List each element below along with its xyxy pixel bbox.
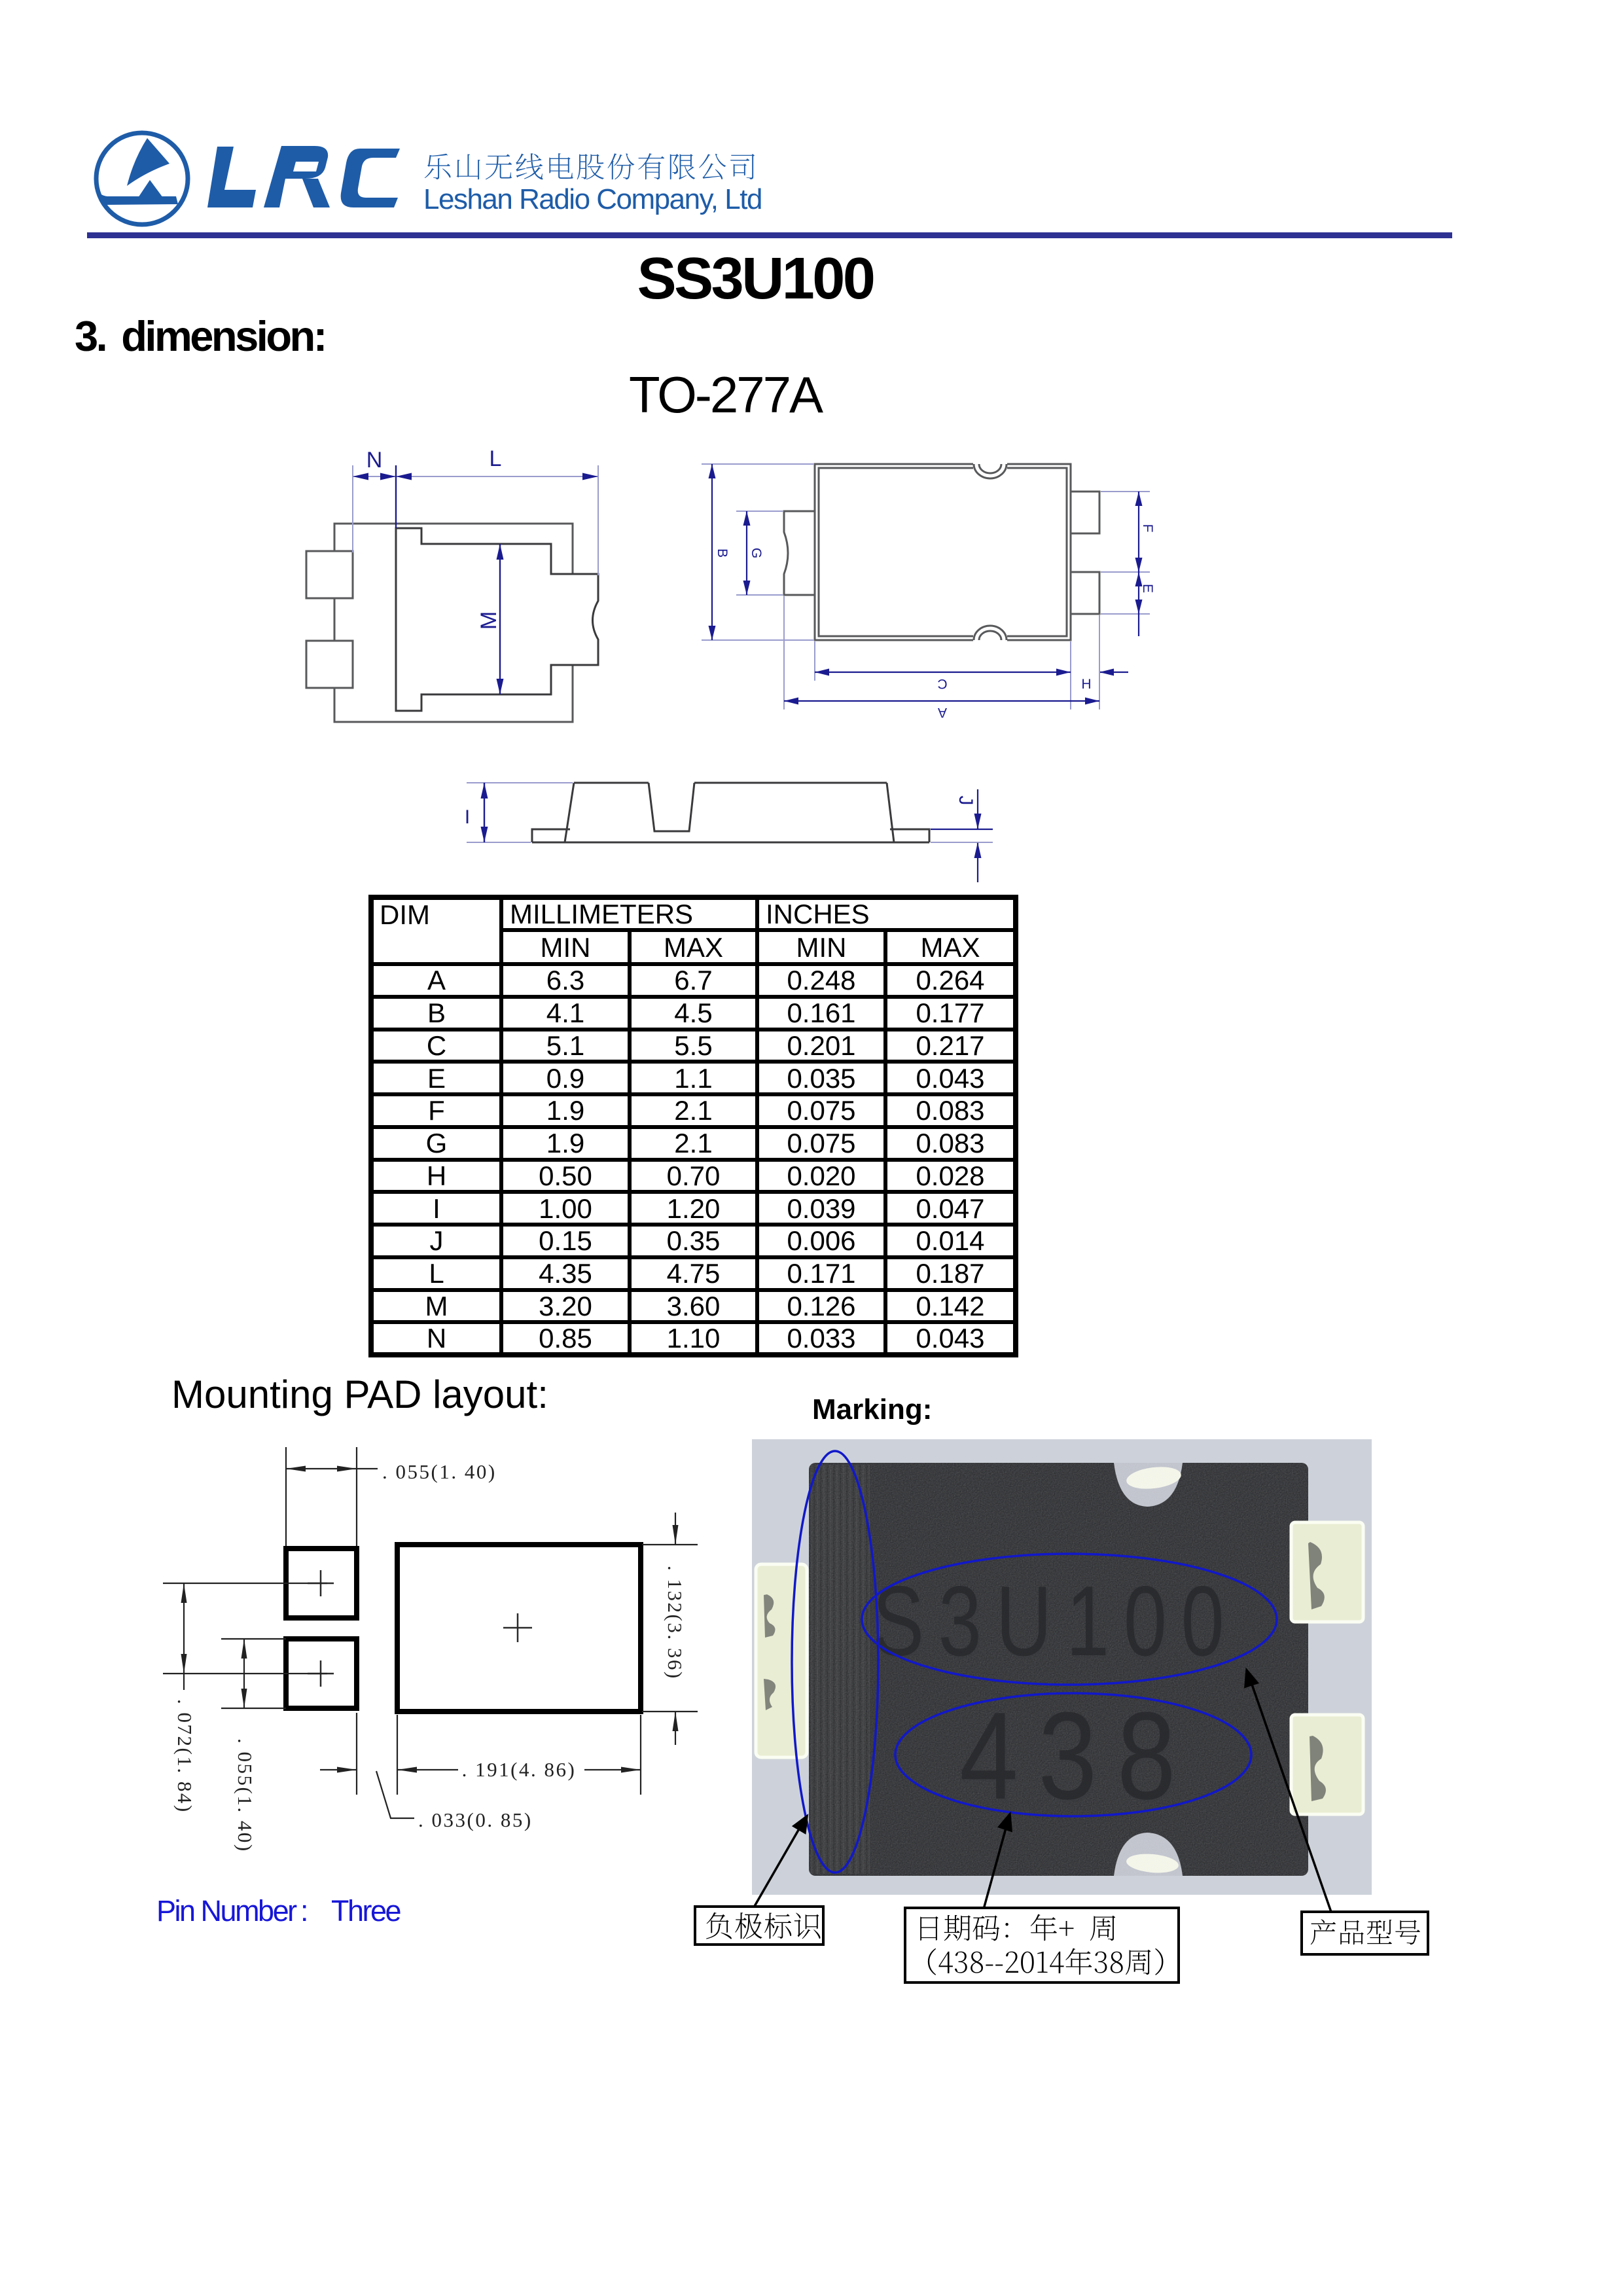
svg-text:E: E [1140,584,1155,593]
svg-text:. 132(3. 36): . 132(3. 36) [664,1566,687,1680]
svg-text:L: L [490,446,502,471]
svg-text:H: H [1081,677,1091,692]
svg-text:J: J [955,796,976,806]
svg-text:. 191(4. 86): . 191(4. 86) [462,1758,577,1781]
svg-text:M: M [476,611,501,630]
svg-text:. 055(1. 40): . 055(1. 40) [382,1460,497,1483]
svg-text:. 033(0. 85): . 033(0. 85) [418,1808,533,1831]
svg-text:G: G [749,548,764,558]
svg-text:C: C [937,676,947,691]
svg-text:A: A [938,705,947,720]
svg-text:N: N [366,448,383,473]
svg-text:B: B [715,548,730,558]
svg-text:. 072(1. 84): . 072(1. 84) [173,1699,196,1814]
svg-text:F: F [1140,524,1155,533]
svg-text:. 055(1. 40): . 055(1. 40) [234,1738,257,1853]
svg-text:Leshan Radio Company, Ltd: Leshan Radio Company, Ltd [423,183,762,215]
svg-text:438: 438 [959,1687,1196,1825]
svg-text:S3U100: S3U100 [872,1566,1238,1676]
svg-text:I: I [465,806,470,828]
